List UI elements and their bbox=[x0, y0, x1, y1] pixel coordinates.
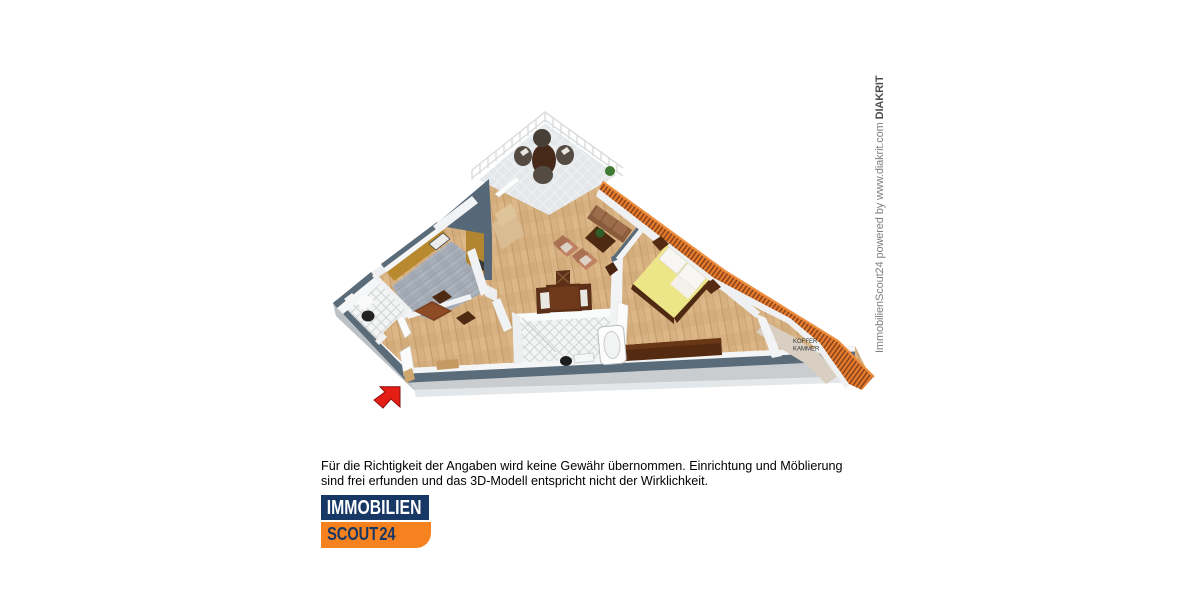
svg-text:KAMMER: KAMMER bbox=[793, 347, 820, 353]
svg-text:KOFFER: KOFFER bbox=[793, 339, 818, 345]
